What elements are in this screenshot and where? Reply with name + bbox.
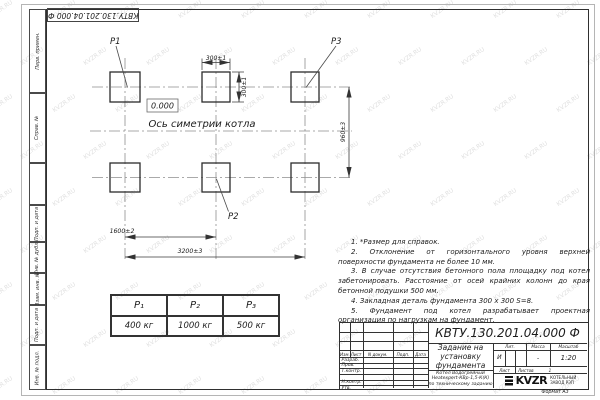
header-n-dokum: N докум. [363,352,394,357]
company-cell: KVZR КОТЕЛЬНЫЙ ЗАВОД РЭП [494,373,587,388]
load-label-p3: P3 [331,37,342,47]
format-note: Формат А3 [515,390,595,395]
leader-p1 [116,46,128,88]
dimension-text-960: 960±3 [340,122,347,142]
lit-value: И [494,354,505,361]
title-block-divider [494,350,587,351]
loads-table-header-p3: P₃ [223,295,279,316]
header-list: Лист [350,352,363,357]
load-label-p1: P1 [110,37,121,47]
loads-table-header-p2: P₂ [167,295,223,316]
company-name-line: ЗАВОД РЭП [550,381,576,386]
document-title: Задание на установку фундамента [428,343,493,370]
note-2: 2. Отклонение от горизонтального уровня … [338,248,590,268]
document-subtitle-line: по техническому заданию [429,382,493,388]
sign-row-razrab: Разраб. [342,358,360,363]
kvzr-logo-text: KVZR [516,374,547,387]
header-data: Дата [413,352,428,357]
elevation-value: 0.000 [151,102,174,111]
scale-label: Масштаб [550,344,587,349]
dimension-text-300-width: 300±1 [206,55,226,62]
drawing-sheet: KVZR.RUKVZR.RUKVZR.RUKVZR.RUKVZR.RUKVZR.… [0,0,600,400]
title-block-divider [340,374,428,375]
sheets-value: 1 [545,368,555,373]
lit-label: Лит. [494,344,526,349]
load-label-p2: P2 [228,212,239,222]
kvzr-logo-icon [505,376,513,386]
note-1: 1. *Размер для справок. [338,238,590,248]
sign-row-utv: Утв. [342,386,351,391]
dimension-text-1600: 1600±2 [110,228,135,235]
header-izm: Изм. [340,352,350,357]
loads-table-header-p1: P₁ [111,295,167,316]
note-3: 3. В случае отсутствия бетонного пола пл… [338,267,590,296]
boiler-symmetry-axis-label: Ось симетрии котла [149,119,256,130]
leader-p2 [217,179,229,212]
title-block-divider [505,350,506,367]
title-block-divider [340,385,428,386]
document-title-line: Задание на [438,343,483,352]
loads-table: P₁ P₂ P₃ 400 кг 1000 кг 500 кг [110,294,280,337]
loads-table-value-p3: 500 кг [223,316,279,337]
note-4: 4. Закладная деталь фундамента 300 x 300… [338,297,590,307]
title-block: Изм. Лист N докум. Подп. Дата Разраб. Пр… [339,322,589,390]
sign-row-n-kontr: Н.контр. [342,380,362,385]
document-title-line: установку [440,352,480,361]
scale-value: 1:20 [550,354,587,362]
leader-p3 [306,46,336,88]
title-block-divider [515,366,516,373]
mass-label: Масса [526,344,550,349]
company-name: КОТЕЛЬНЫЙ ЗАВОД РЭП [550,376,576,386]
sheet-label: Лист [494,368,515,373]
loads-table-value-p2: 1000 кг [167,316,223,337]
dimension-text-3200: 3200±3 [178,248,203,255]
sign-row-t-kontr: Т.контр. [342,369,362,374]
mass-value: - [526,354,550,362]
header-podp: Подп. [393,352,413,357]
document-title-line: фундамента [436,361,486,370]
loads-table-value-p1: 400 кг [111,316,167,337]
title-block-divider [340,341,428,342]
document-designation: КВТУ.130.201.04.000 Ф [428,323,587,343]
title-block-divider [515,350,516,367]
sheets-label: Листов [518,368,542,373]
technical-notes: 1. *Размер для справок. 2. Отклонение от… [338,238,590,326]
title-block-divider [340,332,428,333]
document-subtitle: Котел Водогрейный Heatexpert-КВр-1,5-К(К… [428,370,493,388]
sign-row-prov: Пров. [342,363,355,368]
dimension-text-300-height: 300±1 [241,77,248,97]
